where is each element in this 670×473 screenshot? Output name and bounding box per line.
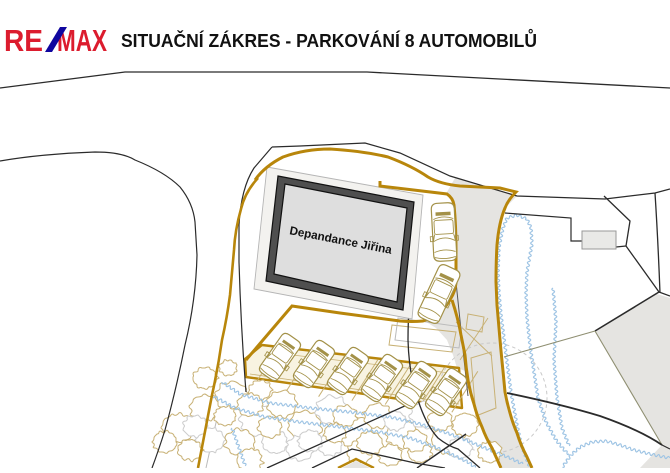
svg-text:SITUAČNÍ ZÁKRES - PARKOVÁNÍ 8: SITUAČNÍ ZÁKRES - PARKOVÁNÍ 8 AUTOMOBILŮ	[121, 29, 537, 51]
svg-text:RE: RE	[4, 23, 43, 58]
